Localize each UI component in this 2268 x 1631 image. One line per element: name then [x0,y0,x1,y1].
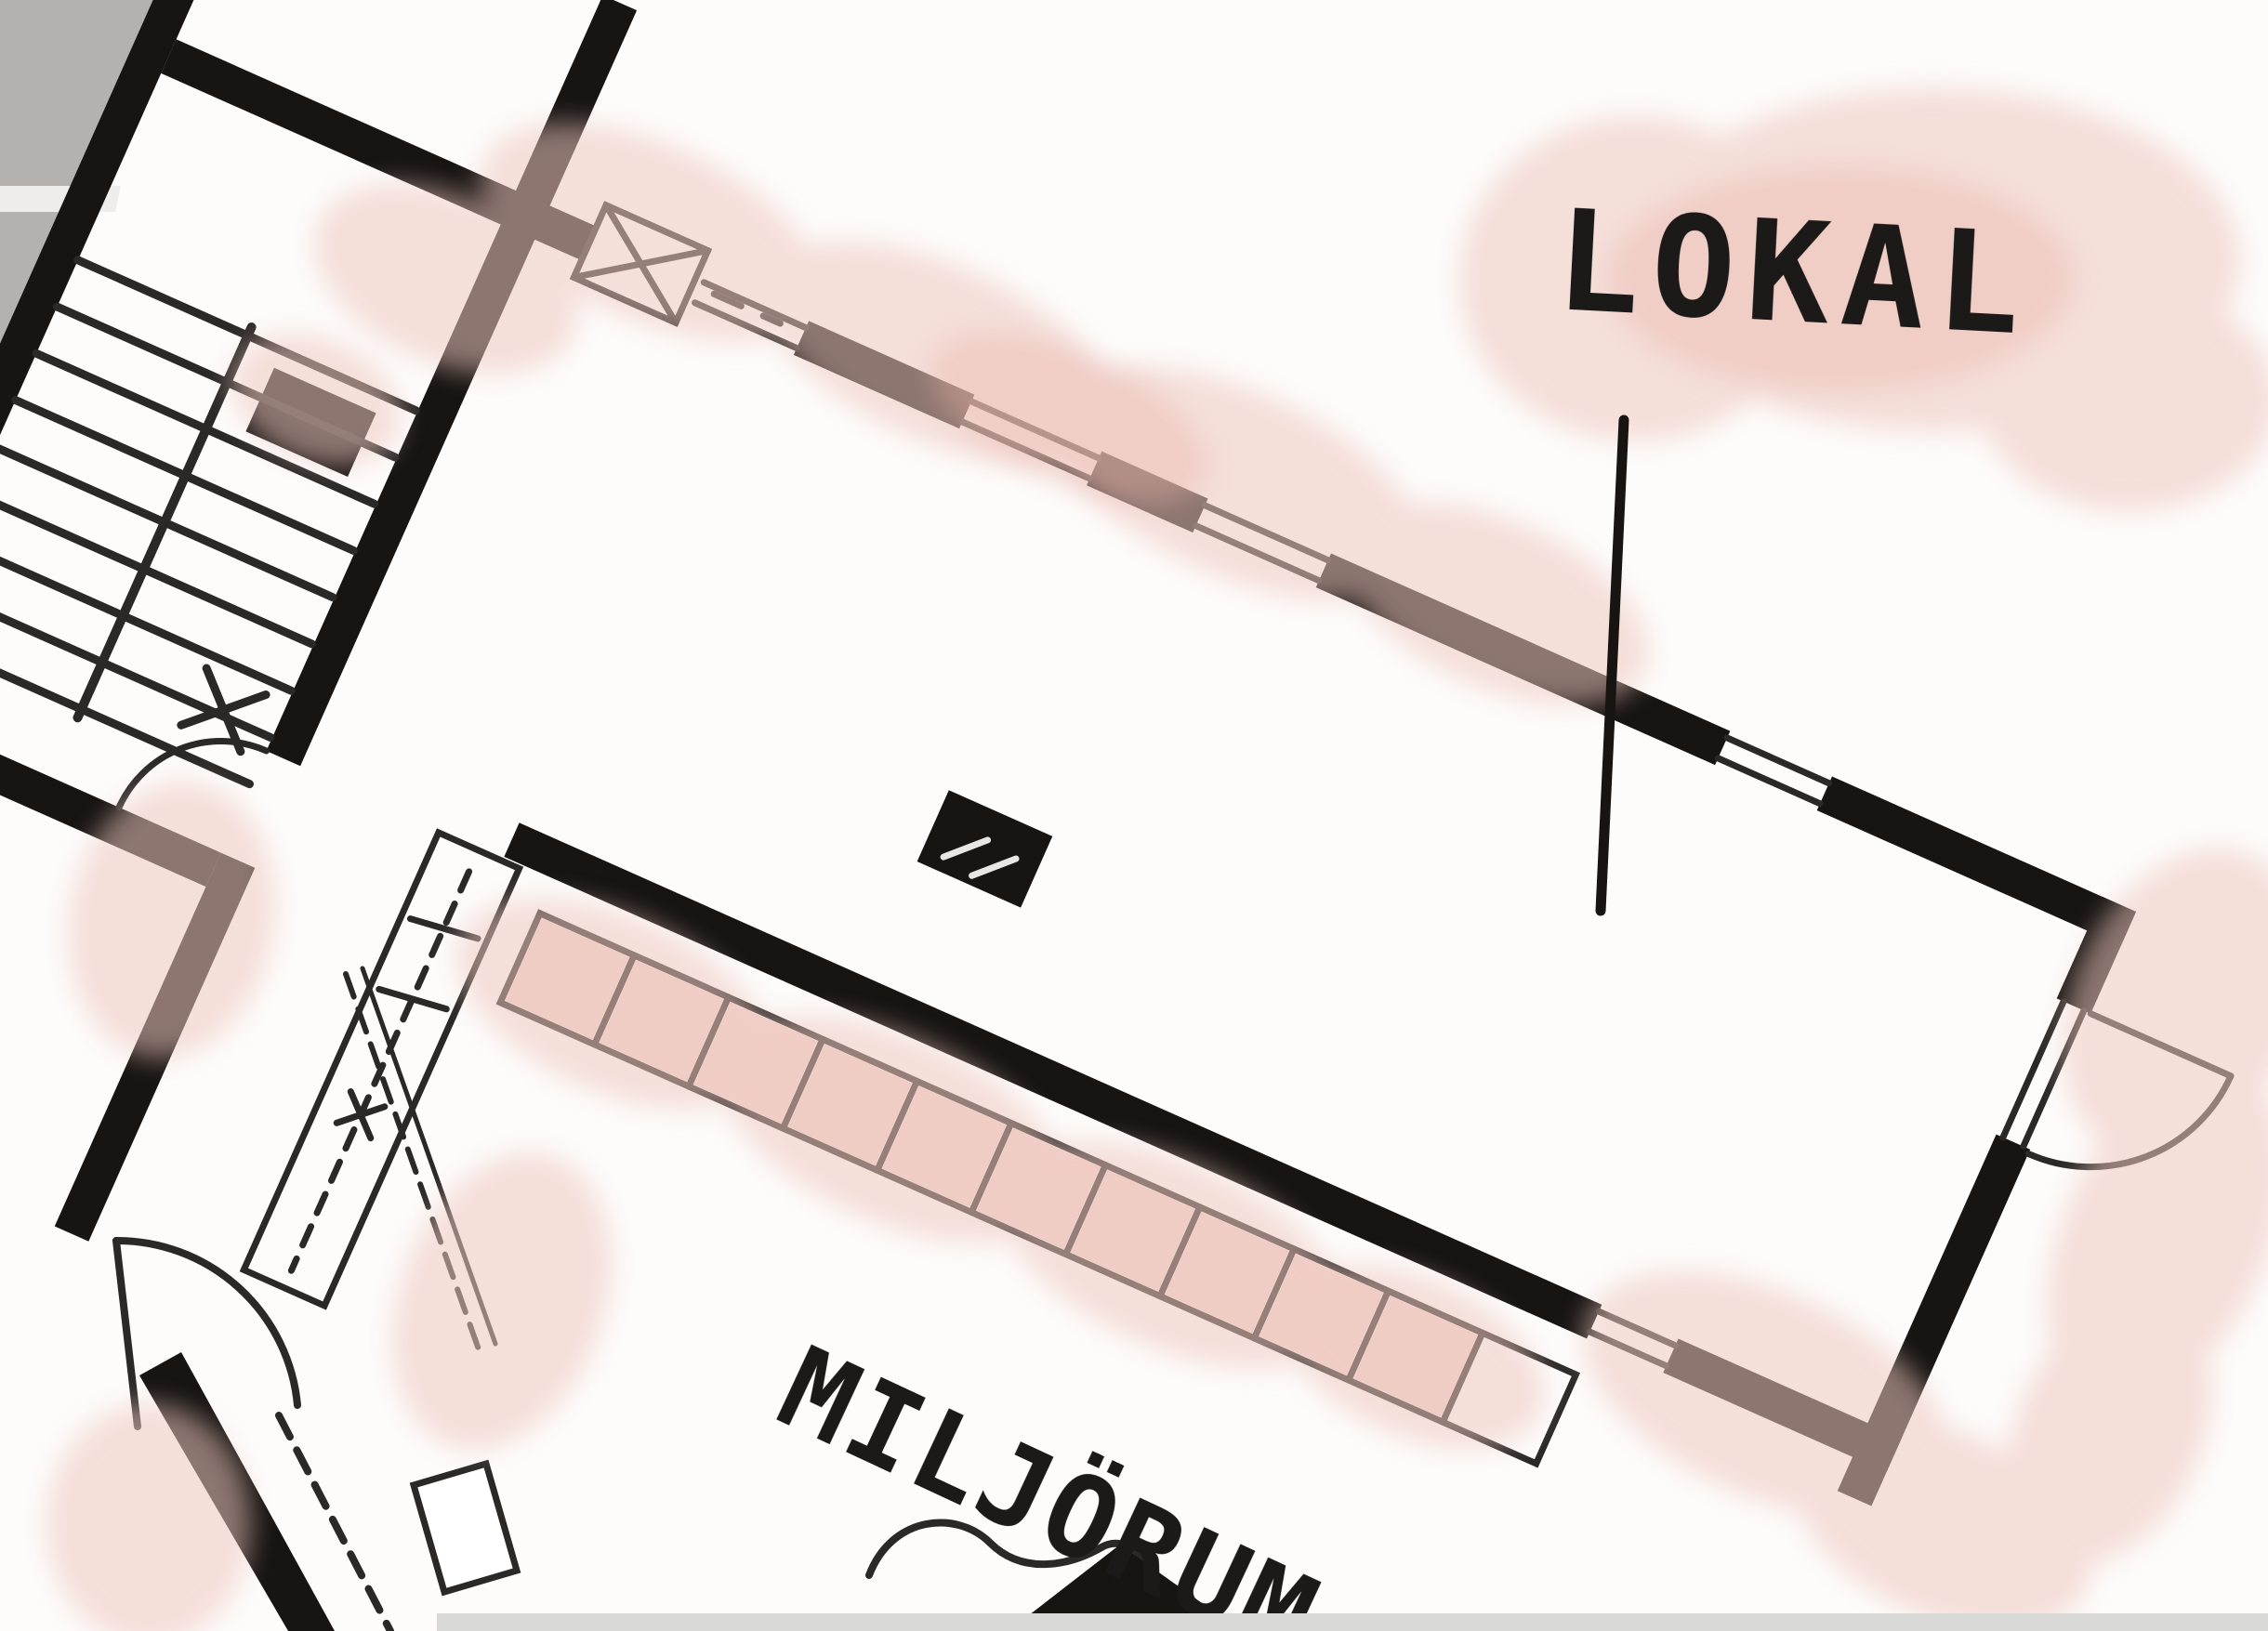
room-label-lokal: LOKAL [1552,180,2036,367]
floor-plan-page: LOKAL MILJÖRUM [0,0,2268,1631]
floor-plan-svg: LOKAL MILJÖRUM [0,0,2268,1631]
scan-artifact-strip [437,1613,2268,1631]
